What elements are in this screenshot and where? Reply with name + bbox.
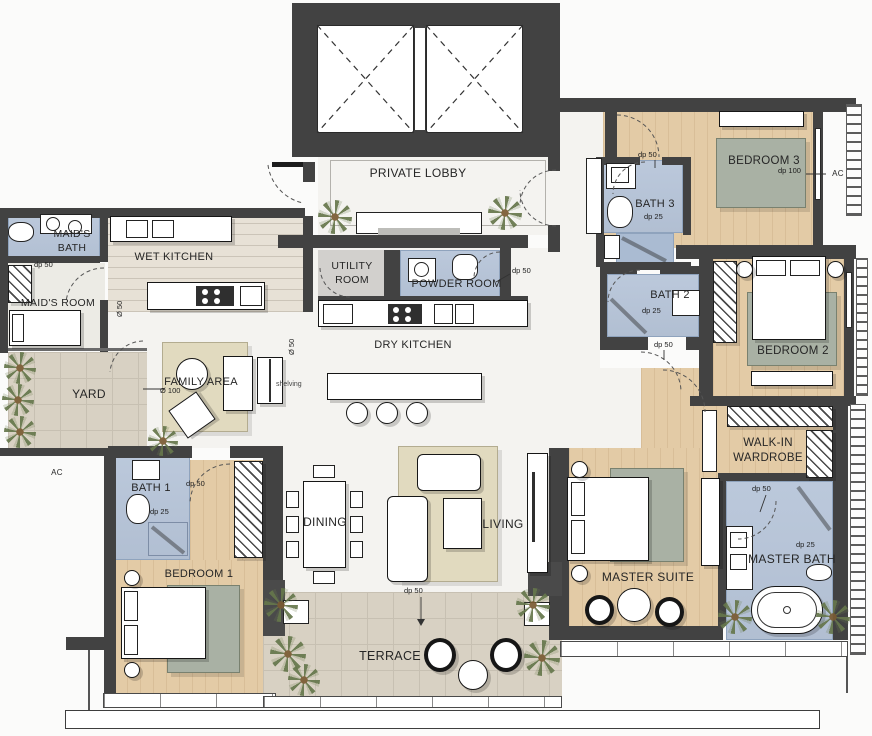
closet [713, 261, 737, 343]
label-living: LIVING [478, 517, 528, 533]
terrace-edge [263, 696, 562, 708]
elevator-divider [414, 28, 426, 130]
burner [202, 298, 208, 304]
burner [393, 316, 399, 322]
label-maids-bath: MAID'S BATH [40, 228, 104, 255]
elevator-shaft [317, 25, 414, 133]
label-bedroom-2: BEDROOM 2 [752, 344, 834, 359]
wall [104, 453, 116, 703]
label-maids-room: MAID'S ROOM [14, 297, 102, 311]
pillow [756, 260, 786, 276]
label-yard: YARD [64, 387, 114, 403]
dining-chair [313, 571, 335, 584]
sink [455, 304, 474, 324]
wall [263, 446, 283, 596]
label-walk-in-wardrobe: WALK-IN WARDROBE [722, 436, 814, 466]
label-master-suite: MASTER SUITE [600, 570, 696, 586]
pillow [571, 482, 585, 516]
wall [0, 448, 118, 456]
annotation-dp50: dp 50 [186, 479, 205, 488]
pillow [571, 520, 585, 554]
stool [346, 402, 368, 424]
burner [214, 298, 220, 304]
sink [152, 220, 174, 238]
fridge [323, 304, 353, 324]
annotation-dp25: dp 25 [796, 540, 815, 549]
plant-icon [264, 588, 298, 622]
wardrobe [727, 406, 833, 427]
sink [730, 532, 747, 548]
lounge-chair [655, 597, 684, 627]
console [719, 111, 804, 127]
burner [214, 289, 220, 295]
annotation-dp100: dp 100 [778, 166, 801, 175]
label-bath-3: BATH 3 [632, 197, 678, 211]
shelving-divider [269, 359, 271, 402]
wall [0, 208, 8, 353]
plant-icon [516, 588, 550, 622]
plant-icon [288, 664, 320, 696]
annotation-dp50: dp 50 [34, 260, 53, 269]
label-private-lobby: PRIVATE LOBBY [368, 166, 468, 182]
nightstand [571, 565, 588, 582]
sink [126, 220, 148, 238]
wardrobe-cabinet [702, 410, 717, 472]
pillow [124, 625, 138, 655]
wall [548, 98, 856, 112]
wall [600, 266, 607, 337]
wall [699, 259, 713, 396]
building-footprint [65, 710, 820, 729]
wall [690, 396, 856, 406]
annotation-dia100: Ø 100 [160, 386, 180, 395]
wall [8, 256, 100, 263]
tv-console [527, 453, 548, 573]
wall [683, 165, 691, 235]
annotation-shelving: shelving [276, 381, 302, 388]
kitchen-island [327, 373, 482, 400]
toilet [607, 196, 633, 228]
nightstand [124, 662, 140, 678]
label-bath-2: BATH 2 [646, 288, 694, 302]
wall [600, 337, 648, 350]
label-bath-1: BATH 1 [128, 481, 174, 495]
label-wet-kitchen: WET KITCHEN [124, 250, 224, 264]
window [846, 272, 852, 328]
wall [548, 225, 560, 252]
burner [405, 307, 411, 313]
annotation-dp50: dp 50 [752, 484, 771, 493]
plant-icon [4, 352, 36, 384]
shower [148, 522, 188, 556]
balcony-edge [560, 641, 848, 657]
elevator-shaft [426, 25, 523, 133]
hall-opening-floor [560, 368, 641, 448]
wall [549, 448, 569, 638]
wall [278, 235, 528, 248]
pillow [790, 260, 820, 276]
plant-icon [718, 600, 752, 634]
wall [548, 157, 560, 171]
wall [605, 112, 617, 160]
bench [751, 371, 833, 386]
nightstand [736, 261, 753, 278]
annotation-dia50: Ø 50 [115, 301, 124, 317]
sink [434, 304, 453, 324]
annotation-dp50: dp 50 [638, 150, 657, 159]
label-ac-right: AC [827, 169, 849, 179]
toilet [126, 494, 150, 524]
annotation-dp50: dp 50 [654, 340, 673, 349]
stool [376, 402, 398, 424]
plant-icon [148, 426, 178, 456]
dining-chair [350, 516, 363, 533]
dining-chair [350, 491, 363, 508]
pillow [12, 314, 24, 342]
footprint-line [846, 657, 848, 693]
annotation-dp50: dp 50 [512, 266, 531, 275]
plant-icon [318, 200, 352, 234]
dining-chair [286, 541, 299, 558]
riser-shaft [604, 235, 620, 259]
terrace-chair [424, 638, 456, 672]
oven [240, 286, 262, 306]
annotation-dp50: dp 50 [404, 586, 423, 595]
plant-icon [2, 384, 34, 416]
sink [611, 167, 629, 183]
burner [393, 307, 399, 313]
terrace-table [458, 660, 488, 690]
dining-chair [286, 491, 299, 508]
dining-chair [313, 465, 335, 478]
annotation-dp25: dp 25 [644, 212, 663, 221]
ac-louver [856, 258, 868, 396]
wall [384, 250, 400, 296]
burner [202, 289, 208, 295]
round-table [617, 588, 651, 622]
plant-icon [816, 600, 850, 634]
foyer-cabinet [586, 158, 602, 234]
lobby-doormat-inner [378, 228, 460, 235]
annotation-dp25: dp 25 [150, 507, 169, 516]
label-utility-room: UTILITY ROOM [322, 260, 382, 287]
master-hallway-floor [641, 368, 703, 448]
bathtub-drain [783, 606, 791, 614]
sofa [417, 454, 481, 491]
tv [532, 472, 535, 542]
label-dry-kitchen: DRY KITCHEN [363, 338, 463, 352]
window [815, 128, 821, 200]
sink [414, 262, 429, 277]
footprint-line [88, 650, 90, 710]
wall [8, 348, 147, 351]
burner [405, 316, 411, 322]
nightstand [124, 570, 140, 586]
pillow [124, 591, 138, 621]
label-bedroom-1: BEDROOM 1 [160, 567, 238, 581]
annotation-dia50: Ø 50 [287, 339, 296, 355]
terrace-chair [490, 638, 522, 672]
lounge-chair [585, 595, 614, 625]
label-ac-closet: AC [44, 468, 70, 478]
chaise [387, 496, 428, 582]
coffee-table [443, 498, 482, 549]
closet [234, 461, 263, 558]
plant-icon [524, 640, 560, 676]
label-dining: DINING [300, 515, 350, 531]
label-master-bath: MASTER BATH [742, 552, 842, 568]
balcony-edge [103, 693, 276, 708]
wardrobe [701, 478, 720, 566]
vanity [132, 460, 160, 480]
wall [303, 162, 315, 182]
dining-chair [350, 541, 363, 558]
stool [406, 402, 428, 424]
nightstand [827, 261, 844, 278]
wall [303, 216, 313, 312]
dining-chair [286, 516, 299, 533]
wall [549, 626, 723, 640]
ac-louver [850, 404, 866, 655]
floor-plan: PRIVATE LOBBY WET KITCHEN UTILITY ROOM P… [0, 0, 872, 736]
wall [662, 157, 691, 165]
label-powder-room: POWDER ROOM [404, 277, 509, 291]
wall [66, 637, 108, 650]
plant-icon [4, 416, 36, 448]
ac-louver [846, 104, 862, 216]
nightstand [571, 461, 588, 478]
toilet [8, 222, 34, 242]
label-terrace: TERRACE [358, 648, 422, 664]
plant-icon [488, 196, 522, 230]
annotation-dp25: dp 25 [642, 306, 661, 315]
wall [607, 266, 637, 274]
